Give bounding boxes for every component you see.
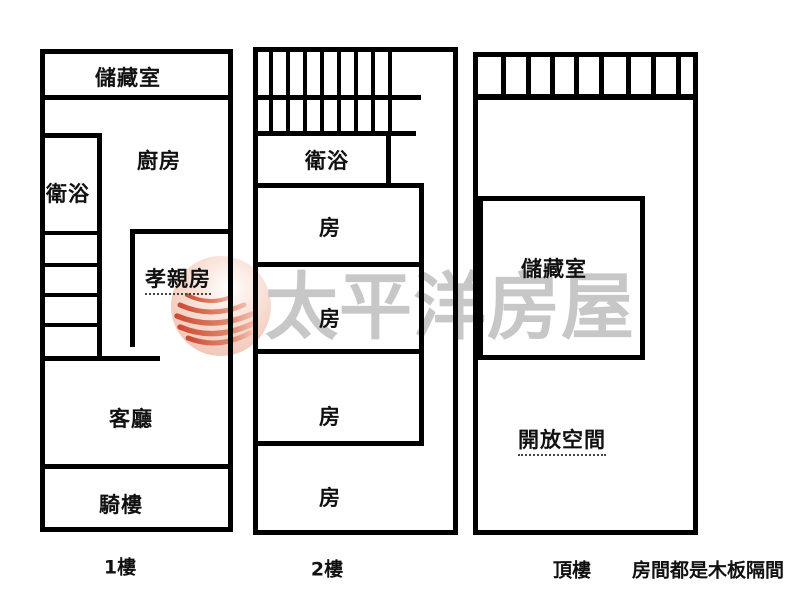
storage-bottom-wall-1f: [40, 95, 233, 100]
room-label-room4-2f: 房: [319, 482, 341, 512]
stair-bottom-wall-roof: [473, 94, 698, 100]
stair-step-line-2f: [337, 52, 341, 97]
bathroom-top-wall-1f: [40, 133, 102, 138]
stair-step-line-roof: [526, 57, 531, 96]
stair-step-line-roof: [651, 57, 656, 96]
floor-caption-2f: 2樓: [311, 555, 343, 582]
bathroom-bottom-wall-2f: [253, 183, 424, 188]
stair-step-line-1f: [40, 231, 97, 235]
floorplan-image: 太平洋房屋 儲藏室 廚房 衛浴 孝親房 客廳 騎樓 衛浴 房 房 房 房 儲藏室…: [0, 0, 800, 591]
room-label-room1-2f: 房: [319, 212, 341, 242]
stair-step-line-2f: [337, 100, 341, 133]
note-label: 房間都是木板隔間: [632, 556, 784, 583]
corridor-wall-2f: [419, 183, 424, 446]
room-divider-wall-2f: [253, 262, 424, 267]
stair-step-line-roof: [501, 57, 506, 96]
room-label-living-room-1f: 客廳: [109, 403, 153, 433]
stair-step-line-2f: [354, 52, 358, 97]
room-divider-wall-2f: [253, 349, 424, 354]
stair-step-line-1f: [40, 263, 97, 267]
stair-step-line-1f: [40, 293, 97, 297]
stair-step-line-2f: [354, 100, 358, 133]
room-label-room3-2f: 房: [319, 401, 341, 431]
room-label-bathroom-1f: 衛浴: [46, 178, 90, 208]
room-label-room2-2f: 房: [319, 303, 341, 333]
stair-step-line-2f: [286, 52, 290, 97]
stair-step-line-roof: [676, 57, 681, 96]
stair-step-line-roof: [550, 57, 555, 96]
room-label-arcade-1f: 騎樓: [99, 489, 143, 519]
floor-caption-roof: 頂樓: [553, 556, 591, 583]
room-label-storage-1f: 儲藏室: [95, 62, 161, 92]
stair-step-line-2f: [388, 52, 392, 97]
parents-room-top-wall-1f: [130, 229, 233, 234]
living-room-bottom-wall-1f: [40, 464, 233, 469]
stair-step-line-roof: [599, 57, 604, 96]
stair-step-line-2f: [320, 52, 324, 97]
stair-step-line-roof: [574, 57, 579, 96]
stair-step-line-1f: [40, 323, 97, 327]
room-label-bathroom-2f: 衛浴: [305, 145, 349, 175]
stair-step-line-2f: [269, 100, 273, 133]
stair-step-line-2f: [303, 100, 307, 133]
stair-step-line-2f: [371, 52, 375, 97]
stair-step-line-2f: [286, 100, 290, 133]
stair-step-line-2f: [303, 52, 307, 97]
stair-step-line-2f: [269, 52, 273, 97]
room-divider-wall-2f: [253, 441, 424, 446]
stair-right-wall-1f: [97, 133, 102, 361]
parents-room-left-wall-1f: [130, 229, 135, 347]
stair-step-line-2f: [371, 100, 375, 133]
room-label-open-space-roof: 開放空間: [518, 424, 606, 456]
room-label-storage-roof: 儲藏室: [521, 253, 587, 283]
stair-step-line-2f: [388, 100, 392, 133]
stair-step-line-2f: [320, 100, 324, 133]
floor-caption-1f: 1樓: [104, 553, 136, 580]
stair-bottom-wall-1f: [40, 356, 160, 361]
room-label-parents-room-1f: 孝親房: [145, 263, 211, 295]
room-label-kitchen-1f: 廚房: [137, 145, 181, 175]
stair-step-line-roof: [626, 57, 631, 96]
bathroom-right-wall-2f: [386, 131, 391, 188]
